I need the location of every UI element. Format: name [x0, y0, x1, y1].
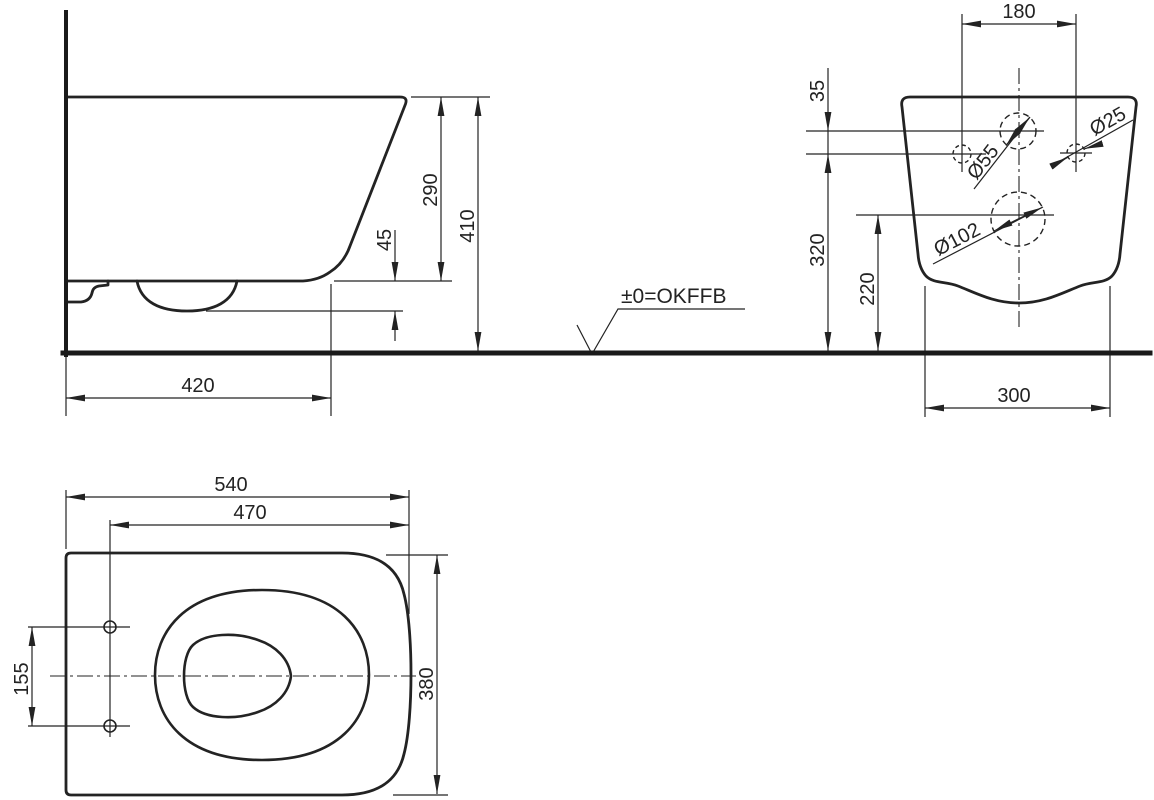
side-view: 290 410 45 420 [66, 97, 490, 416]
dim-label-290: 290 [420, 173, 442, 206]
seat-opening-outline [155, 590, 369, 760]
dim-supply-offset: 35 [807, 68, 829, 154]
dim-overall-width: 380 [416, 555, 438, 794]
dim-fixing-spacing: 180 [962, 1, 1076, 24]
dim-label-410: 410 [457, 209, 479, 242]
technical-drawing-canvas: 290 410 45 420 [0, 0, 1154, 800]
dim-label-35: 35 [807, 80, 829, 102]
datum-callout: ±0=OKFFB [577, 285, 745, 354]
callout-supply-dia: Ø55 [963, 117, 1030, 189]
dim-base-width: 300 [925, 385, 1110, 408]
dim-label-380: 380 [416, 667, 438, 700]
dim-total-height: 410 [457, 97, 479, 351]
top-view: 540 470 155 380 [11, 474, 448, 795]
dim-label-45: 45 [374, 229, 396, 251]
dim-label-180: 180 [1002, 1, 1035, 23]
dim-label-540: 540 [214, 474, 247, 496]
dim-label-320: 320 [807, 233, 829, 266]
callout-fixing-dia: Ø25 [1052, 103, 1133, 166]
datum-leader [577, 309, 745, 354]
dim-rim-to-bottom: 290 [420, 97, 442, 281]
dim-label-d102: Ø102 [930, 219, 984, 261]
dim-label-300: 300 [997, 385, 1030, 407]
dim-label-d55: Ø55 [963, 141, 1004, 184]
dim-fixing-height: 320 [807, 154, 829, 351]
drawing-page: 290 410 45 420 [0, 0, 1154, 800]
dim-front-to-fixing: 470 [110, 502, 409, 525]
dim-label-220: 220 [857, 272, 879, 305]
dim-seat-hole-spacing: 155 [11, 627, 33, 726]
dim-floor-depth: 420 [66, 375, 331, 398]
trap-arc [137, 281, 237, 311]
dim-bottom-to-trap: 45 [374, 229, 396, 341]
dim-outlet-height: 220 [857, 215, 879, 351]
outlet-step [66, 281, 108, 302]
toilet-side-outline [66, 97, 406, 281]
dim-overall-length: 540 [66, 474, 409, 497]
dim-label-d25: Ø25 [1086, 103, 1130, 141]
dim-label-420: 420 [181, 375, 214, 397]
dim-label-155: 155 [11, 662, 33, 695]
dim-label-470: 470 [233, 502, 266, 524]
datum-label: ±0=OKFFB [621, 285, 726, 308]
